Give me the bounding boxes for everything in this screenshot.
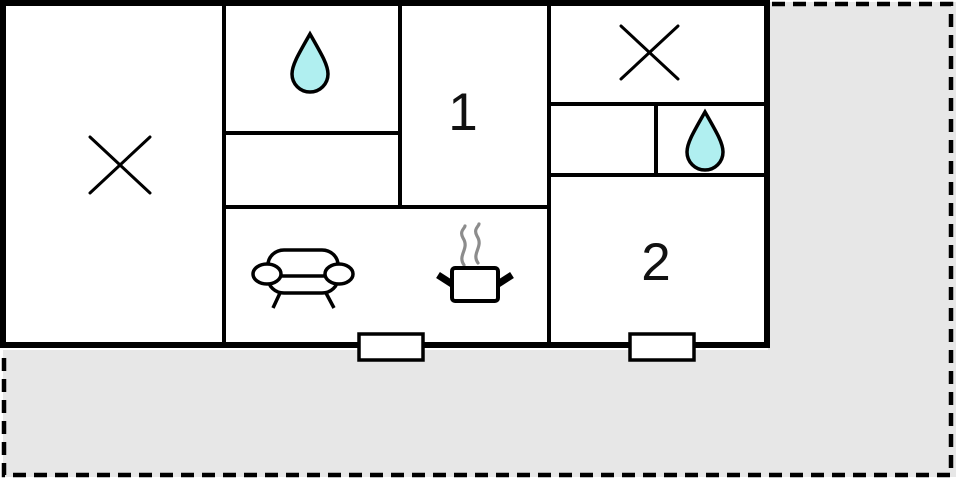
room-2-label: 2: [641, 233, 670, 292]
terrace-bottom-region: [3, 350, 956, 477]
floorplan-canvas: 1 2: [0, 0, 960, 485]
window-marker: [359, 334, 423, 360]
room-1-label: 1: [448, 83, 477, 142]
floorplan-svg: 1 2: [0, 0, 960, 485]
window-marker: [630, 334, 694, 360]
